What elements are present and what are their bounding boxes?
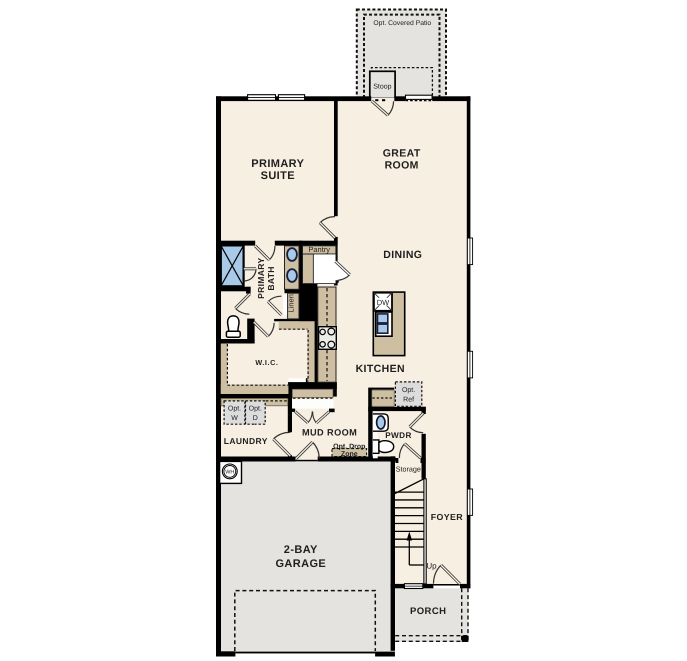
svg-text:W.I.C.: W.I.C. [255,358,278,367]
svg-text:PORCH: PORCH [410,606,446,617]
svg-text:W: W [231,415,238,422]
svg-text:Linen: Linen [286,294,295,312]
svg-text:Opt.: Opt. [228,406,241,413]
svg-text:FOYER: FOYER [431,512,464,522]
svg-text:Opt. Drop: Opt. Drop [333,443,365,450]
svg-text:GREAT: GREAT [383,148,421,160]
svg-text:Pantry: Pantry [308,245,330,254]
svg-text:KITCHEN: KITCHEN [356,363,405,375]
svg-text:ROOM: ROOM [385,160,419,172]
svg-text:PWDR: PWDR [385,431,412,440]
svg-text:Zone: Zone [341,451,358,458]
svg-text:MUD ROOM: MUD ROOM [302,428,357,438]
svg-text:Opt.: Opt. [249,406,262,413]
svg-text:Stoop: Stoop [373,83,391,90]
svg-text:Ref: Ref [403,395,414,403]
svg-text:WH: WH [225,469,234,475]
svg-text:GARAGE: GARAGE [275,558,326,570]
svg-text:Opt.: Opt. [402,387,415,394]
svg-text:SUITE: SUITE [261,170,295,182]
svg-text:PRIMARY: PRIMARY [251,158,304,170]
svg-text:Storage: Storage [396,465,421,474]
svg-text:Opt. Covered Patio: Opt. Covered Patio [373,20,431,27]
svg-text:LAUNDRY: LAUNDRY [224,436,268,446]
svg-text:DW: DW [377,298,390,307]
svg-text:BATH: BATH [266,266,276,290]
svg-text:PRIMARY: PRIMARY [256,257,266,298]
svg-text:D: D [253,415,258,422]
svg-text:Up: Up [426,562,437,571]
svg-text:DINING: DINING [383,249,422,261]
svg-text:2-BAY: 2-BAY [284,544,318,556]
